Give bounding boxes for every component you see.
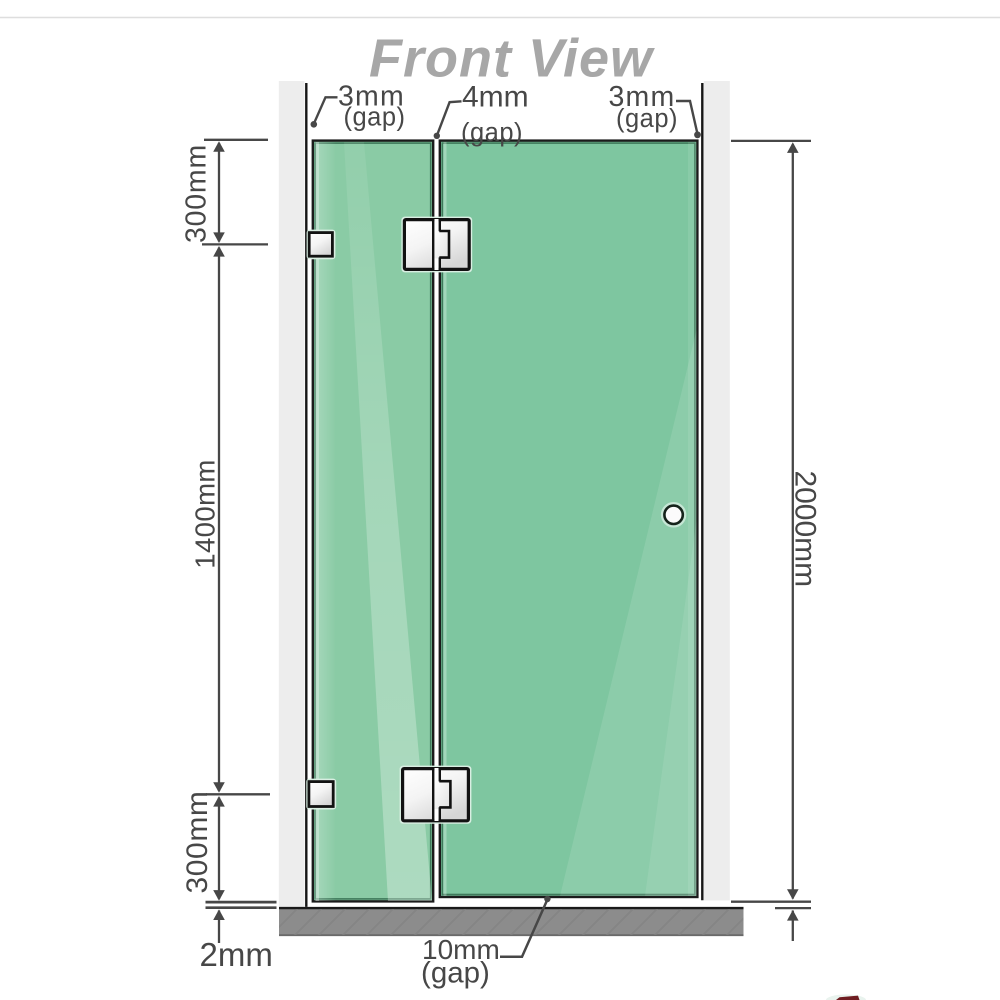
svg-text:300mm: 300mm xyxy=(181,144,213,243)
svg-text:300mm: 300mm xyxy=(181,790,214,893)
svg-text:2000mm: 2000mm xyxy=(789,470,822,587)
svg-text:(gap): (gap) xyxy=(616,105,678,133)
svg-text:Front View: Front View xyxy=(369,29,655,89)
svg-text:(gap): (gap) xyxy=(461,119,523,147)
svg-text:(gap): (gap) xyxy=(344,104,406,132)
svg-text:4mm: 4mm xyxy=(462,81,529,114)
svg-text:(gap): (gap) xyxy=(421,957,490,990)
svg-text:1400mm: 1400mm xyxy=(190,459,221,568)
svg-text:2mm: 2mm xyxy=(200,936,273,973)
